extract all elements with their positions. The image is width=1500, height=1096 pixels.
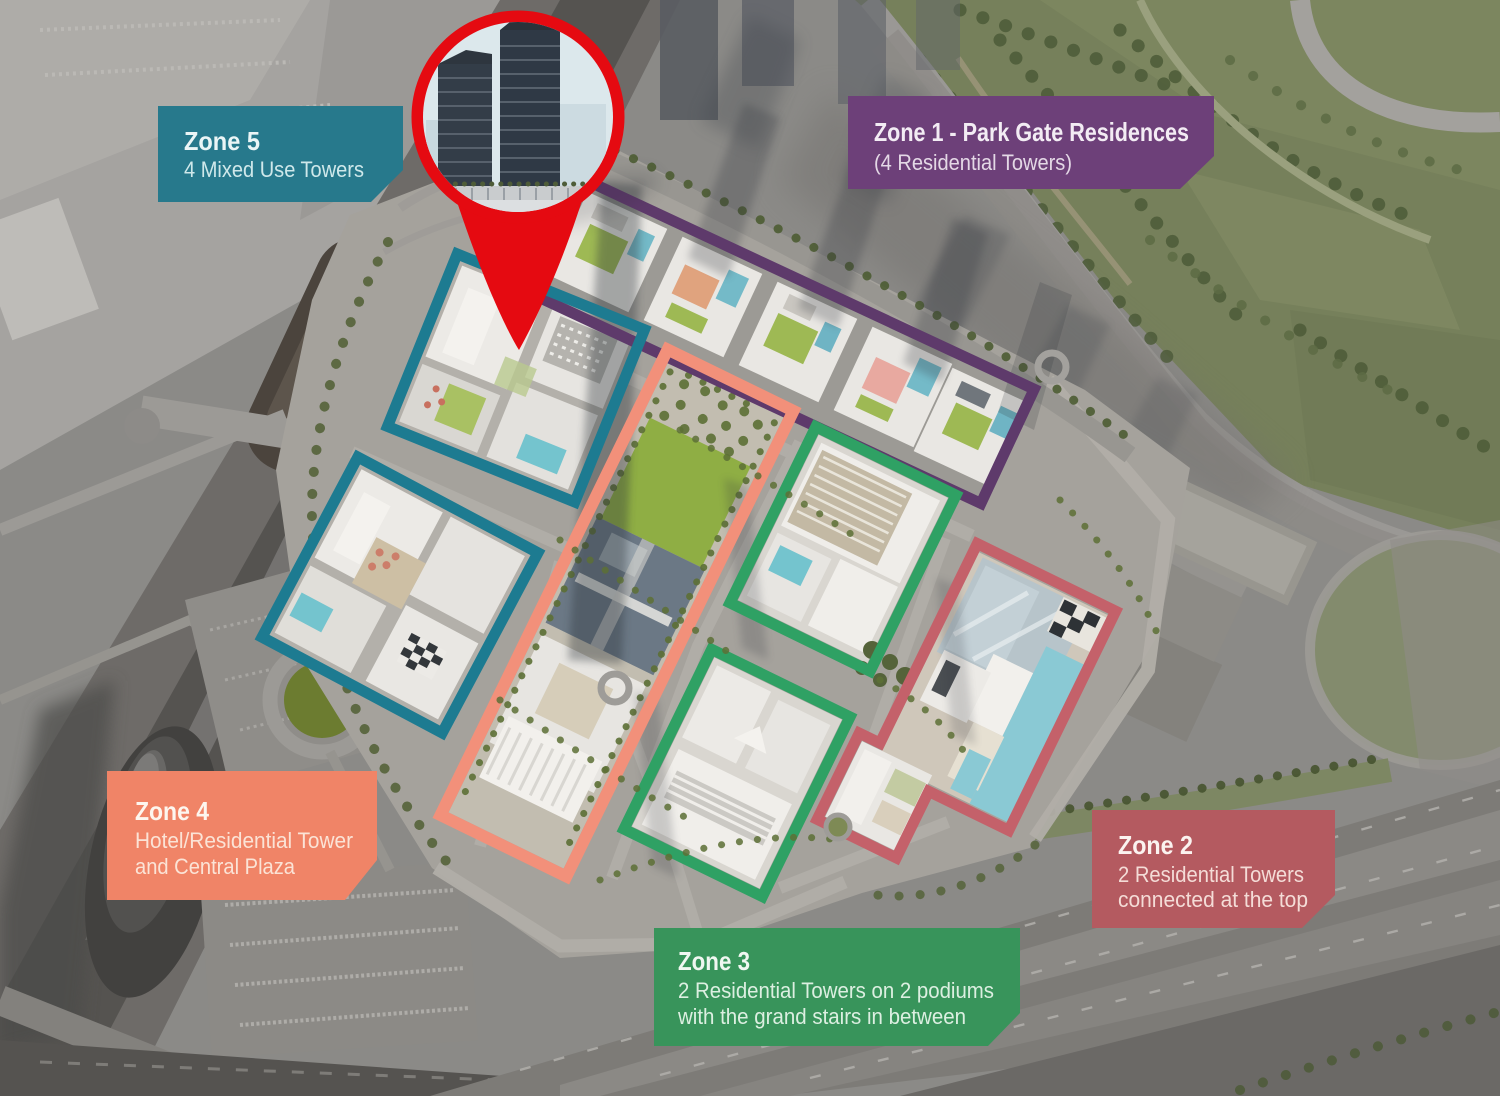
svg-text:Zone 1 - Park Gate Residences: Zone 1 - Park Gate Residences [874, 117, 1189, 147]
svg-text:2 Residential Towers on 2 podi: 2 Residential Towers on 2 podiums [678, 978, 994, 1003]
svg-text:Hotel/Residential Tower: Hotel/Residential Tower [135, 828, 353, 853]
svg-text:Zone 4: Zone 4 [135, 796, 209, 826]
svg-text:Zone 5: Zone 5 [184, 126, 260, 156]
svg-text:2 Residential Towers: 2 Residential Towers [1118, 862, 1304, 887]
svg-text:connected at the top: connected at the top [1118, 887, 1308, 912]
svg-text:Zone 2: Zone 2 [1118, 830, 1193, 860]
svg-text:with the grand stairs in betwe: with the grand stairs in between [677, 1004, 966, 1029]
svg-text:and Central Plaza: and Central Plaza [135, 854, 296, 879]
svg-text:Zone 3: Zone 3 [678, 946, 750, 976]
svg-text:(4 Residential Towers): (4 Residential Towers) [874, 150, 1072, 175]
svg-text:4 Mixed Use Towers: 4 Mixed Use Towers [184, 157, 364, 182]
